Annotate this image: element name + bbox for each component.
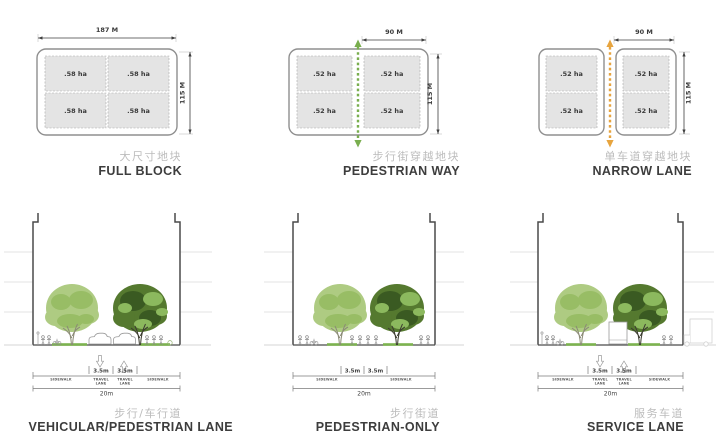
height-dimension-label: 115 M — [426, 83, 434, 105]
quadrant-area-label: .52 ha — [560, 107, 583, 115]
quadrant-area-label: .52 ha — [313, 107, 336, 115]
zone-label-sidewalk: SIDEWALK — [50, 378, 72, 382]
zone-label-sidewalk: SIDEWALK — [316, 378, 338, 382]
lawn-strip — [628, 343, 660, 346]
width-dimension-label: 90 M — [385, 28, 403, 36]
quadrant-area-label: .52 ha — [560, 70, 583, 78]
zone-label-lane: LANE — [96, 382, 107, 386]
caption-en: NARROW LANE — [592, 164, 692, 178]
caption-cn: 单车道穿越地块 — [605, 149, 693, 163]
caption-en: VEHICULAR/PEDESTRIAN LANE — [29, 420, 233, 434]
width-dimension-label: 187 M — [96, 26, 118, 34]
lawn-strip — [566, 343, 596, 346]
urban-block-typology-diagram: 187 M .58 ha .58 ha .58 ha .58 ha 115 M … — [0, 0, 720, 439]
lane-width-label: 3.5m — [93, 369, 109, 375]
service-truck-icon — [609, 322, 627, 344]
quadrant-area-label: .52 ha — [635, 70, 658, 78]
caption-cn: 大尺寸地块 — [120, 149, 183, 163]
caption-en: PEDESTRIAN-ONLY — [316, 420, 441, 434]
caption-cn: 服务车道 — [634, 406, 684, 420]
caption-en: FULL BLOCK — [98, 164, 182, 178]
quadrant-area-label: .52 ha — [635, 107, 658, 115]
height-dimension-label: 115 M — [179, 82, 187, 104]
caption-cn: 步行街道 — [390, 406, 440, 420]
quadrant-area-label: .58 ha — [127, 70, 150, 78]
quadrant-area-label: .52 ha — [381, 70, 404, 78]
zone-label-lane: LANE — [619, 382, 630, 386]
zone-label-lane: LANE — [120, 382, 131, 386]
height-dimension-label: 115 M — [685, 82, 693, 104]
lane-width-label: 3.5m — [592, 369, 608, 375]
quadrant-area-label: .58 ha — [127, 107, 150, 115]
total-width-label: 20m — [100, 391, 114, 398]
total-width-label: 20m — [357, 391, 371, 398]
caption-en: SERVICE LANE — [587, 420, 684, 434]
zone-label-sidewalk: SIDEWALK — [390, 378, 412, 382]
caption-cn: 步行街穿越地块 — [373, 149, 461, 163]
caption-cn: 步行/车行道 — [114, 406, 182, 420]
lane-width-label: 3.5m — [616, 369, 632, 375]
lane-width-label: 3.5m — [345, 369, 361, 375]
lane-width-label: 3.5m — [117, 369, 133, 375]
zone-label-sidewalk: SIDEWALK — [147, 378, 169, 382]
width-dimension-label: 90 M — [635, 28, 653, 36]
total-width-label: 20m — [604, 391, 618, 398]
quadrant-area-label: .58 ha — [64, 107, 87, 115]
zone-label-sidewalk: SIDEWALK — [649, 378, 671, 382]
caption-en: PEDESTRIAN WAY — [343, 164, 460, 178]
quadrant-area-label: .52 ha — [313, 70, 336, 78]
zone-label-sidewalk: SIDEWALK — [552, 378, 574, 382]
quadrant-area-label: .52 ha — [381, 107, 404, 115]
lane-width-label: 3.5m — [368, 369, 384, 375]
zone-label-lane: LANE — [595, 382, 606, 386]
quadrant-area-label: .58 ha — [64, 70, 87, 78]
